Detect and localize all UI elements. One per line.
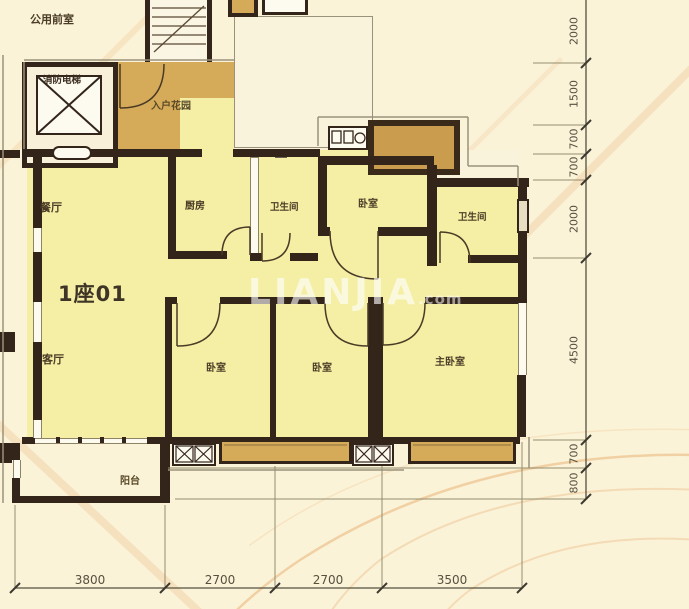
wall	[468, 255, 518, 263]
stairwell	[145, 0, 212, 62]
window	[518, 303, 527, 375]
room-label-entry-garden: 入户花园	[151, 102, 191, 112]
window	[13, 460, 21, 478]
ac-unit	[172, 443, 216, 466]
wall	[518, 186, 527, 200]
wall	[250, 253, 262, 261]
bay-window	[408, 439, 516, 464]
dim-right-800: 800	[568, 473, 581, 494]
dim-bottom-3500: 3500	[437, 573, 468, 587]
room-label-public-lobby: 公用前室	[30, 14, 74, 25]
room-label-master-bedroom: 主卧室	[435, 358, 465, 368]
wall	[12, 443, 20, 460]
wall-stub	[0, 443, 12, 463]
room-label-bedroom-3: 卧室	[312, 364, 332, 374]
top-edge-fixture	[262, 0, 308, 15]
wall	[168, 251, 227, 259]
wall	[430, 178, 529, 187]
dim-bottom-2700b: 2700	[313, 573, 344, 587]
light-partition-wall	[250, 157, 259, 257]
wall-stub	[0, 332, 15, 352]
dim-right-2000a: 2000	[568, 17, 581, 45]
dim-bottom-2700a: 2700	[205, 573, 236, 587]
wall	[318, 157, 327, 235]
dim-right-4500: 4500	[568, 336, 581, 364]
dim-right-2000b: 2000	[568, 205, 581, 233]
room-label-bath-1: 卫生间	[270, 203, 299, 213]
wall	[165, 303, 172, 443]
watermark-brand: LIANJIA	[248, 272, 418, 313]
ac-unit	[352, 443, 394, 466]
room-label-fire-elevator: 消防电梯	[43, 76, 81, 86]
laundry-fixture	[328, 126, 368, 150]
wall	[378, 227, 434, 236]
room-label-balcony: 阳台	[120, 477, 140, 487]
watermark: LIANJIA.com	[248, 272, 463, 313]
room-label-kitchen: 厨房	[185, 202, 205, 212]
wall	[270, 303, 276, 443]
floor-plan: 公用前室 消防电梯 入户花园 餐厅 厨房 卫生间 卧室 卫生间 1座01 客厅 …	[0, 0, 689, 609]
window	[35, 438, 147, 444]
wall	[517, 375, 526, 437]
wall	[33, 149, 42, 443]
dim-bottom-3800: 3800	[75, 573, 106, 587]
window	[33, 420, 42, 438]
bay-window	[219, 439, 352, 464]
wall	[160, 443, 170, 503]
room-label-dining: 餐厅	[40, 202, 62, 213]
watermark-suffix: .com	[418, 290, 463, 308]
room-label-bedroom-2: 卧室	[206, 364, 226, 374]
wall	[12, 496, 170, 503]
room-label-bedroom-1: 卧室	[358, 200, 378, 210]
wall	[22, 149, 170, 157]
dim-right-1500: 1500	[568, 80, 581, 108]
dim-right-700c: 700	[568, 444, 581, 465]
dim-right-700b: 700	[568, 157, 581, 178]
wall	[368, 303, 383, 443]
unit-number-label: 1座01	[58, 284, 127, 305]
wall	[518, 232, 527, 303]
bath-window	[517, 199, 529, 233]
wall	[290, 253, 318, 261]
window	[33, 302, 42, 342]
wall-stub	[0, 150, 20, 158]
room-label-bath-2: 卫生间	[458, 213, 487, 223]
top-edge-shaft	[228, 0, 258, 17]
roof-terrace	[368, 120, 460, 175]
wall	[168, 157, 176, 257]
wall	[170, 149, 202, 157]
wall	[233, 149, 320, 157]
room-label-living: 客厅	[42, 354, 64, 365]
wall	[427, 165, 437, 266]
dim-right-700a: 700	[568, 129, 581, 150]
wall	[318, 156, 434, 165]
elevator-door	[52, 146, 92, 160]
wall	[22, 437, 35, 444]
window	[33, 228, 42, 252]
wall	[318, 227, 330, 236]
